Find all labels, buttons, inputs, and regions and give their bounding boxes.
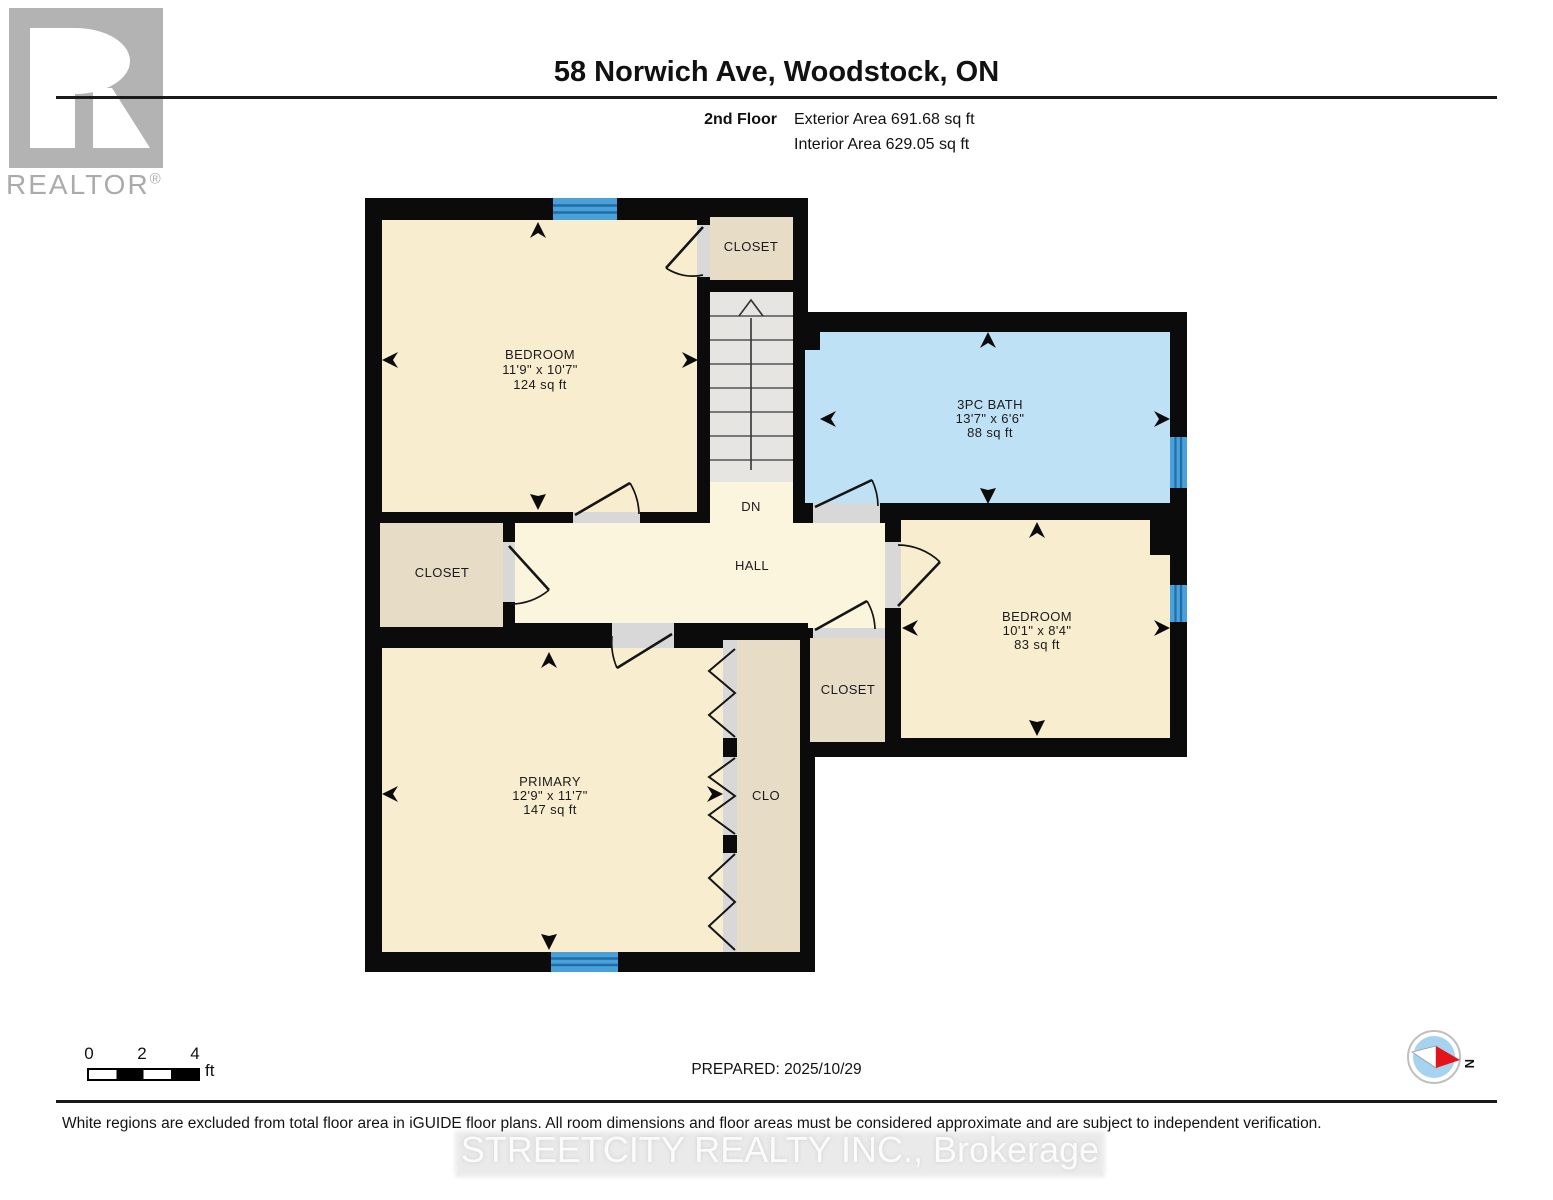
realtor-wordmark: REALTOR® bbox=[6, 169, 163, 201]
bath-area: 88 sq ft bbox=[967, 425, 1013, 440]
threshold-hall-bath bbox=[813, 503, 880, 523]
scale-tick-4: 4 bbox=[190, 1044, 199, 1064]
window-primary bbox=[551, 952, 618, 972]
compass-icon: N bbox=[1404, 1027, 1484, 1091]
clo-wall-stub-bottom bbox=[723, 835, 737, 853]
bedroom-tl-area: 124 sq ft bbox=[513, 377, 566, 392]
compass-north-label: N bbox=[1462, 1059, 1477, 1068]
header-divider bbox=[56, 96, 1497, 99]
scale-tick-0: 0 bbox=[84, 1044, 93, 1064]
exterior-area: Exterior Area 691.68 sq ft bbox=[794, 111, 975, 129]
bedroom-right-wall-notch bbox=[1150, 505, 1187, 555]
window-bedroom-tl bbox=[553, 198, 617, 220]
primary-name: PRIMARY bbox=[519, 774, 581, 789]
hall-label: HALL bbox=[735, 558, 769, 573]
floor-plan: BEDROOM 11'9" x 10'7" 124 sq ft 3PC BATH… bbox=[360, 195, 1192, 975]
primary-area: 147 sq ft bbox=[523, 802, 576, 817]
bath-dims: 13'7" x 6'6" bbox=[956, 411, 1025, 426]
bedroom-right-area: 83 sq ft bbox=[1014, 637, 1060, 652]
threshold-bedroom-hall bbox=[573, 512, 640, 523]
bath-name: 3PC BATH bbox=[957, 397, 1023, 412]
registered-mark: ® bbox=[150, 171, 163, 188]
clo-label: CLO bbox=[752, 788, 780, 803]
closet-top-label: CLOSET bbox=[724, 239, 778, 254]
dn-label: DN bbox=[741, 499, 761, 514]
threshold-hall-bedroom-right bbox=[885, 542, 901, 608]
clo-wall-stub-top bbox=[723, 738, 737, 757]
closet-left-label: CLOSET bbox=[415, 565, 469, 580]
bedroom-tl-name: BEDROOM bbox=[505, 347, 575, 362]
threshold-hall-closet-right bbox=[813, 628, 885, 638]
prepared-date: PREPARED: 2025/10/29 bbox=[640, 1061, 913, 1079]
scale-bar bbox=[87, 1068, 200, 1081]
scale-unit: ft bbox=[205, 1061, 214, 1081]
closet-right-label: CLOSET bbox=[821, 682, 875, 697]
watermark-text: STREETCITY REALTY INC., Brokerage bbox=[440, 1129, 1120, 1171]
interior-area: Interior Area 629.05 sq ft bbox=[794, 136, 969, 154]
footer-divider bbox=[56, 1100, 1497, 1103]
bedroom-right-dims: 10'1" x 8'4" bbox=[1003, 623, 1072, 638]
threshold-hall-primary bbox=[612, 623, 674, 648]
floor-label: 2nd Floor bbox=[560, 111, 777, 129]
window-bath bbox=[1170, 437, 1187, 488]
primary-dims: 12'9" x 11'7" bbox=[512, 788, 588, 803]
bedroom-right-name: BEDROOM bbox=[1002, 609, 1072, 624]
scale-tick-2: 2 bbox=[137, 1044, 146, 1064]
window-bedroom-right bbox=[1170, 585, 1187, 622]
floorplan-page: { "header": { "title": "58 Norwich Ave, … bbox=[0, 0, 1553, 1200]
page-title: 58 Norwich Ave, Woodstock, ON bbox=[0, 56, 1553, 89]
bedroom-tl-dims: 11'9" x 10'7" bbox=[502, 362, 578, 377]
